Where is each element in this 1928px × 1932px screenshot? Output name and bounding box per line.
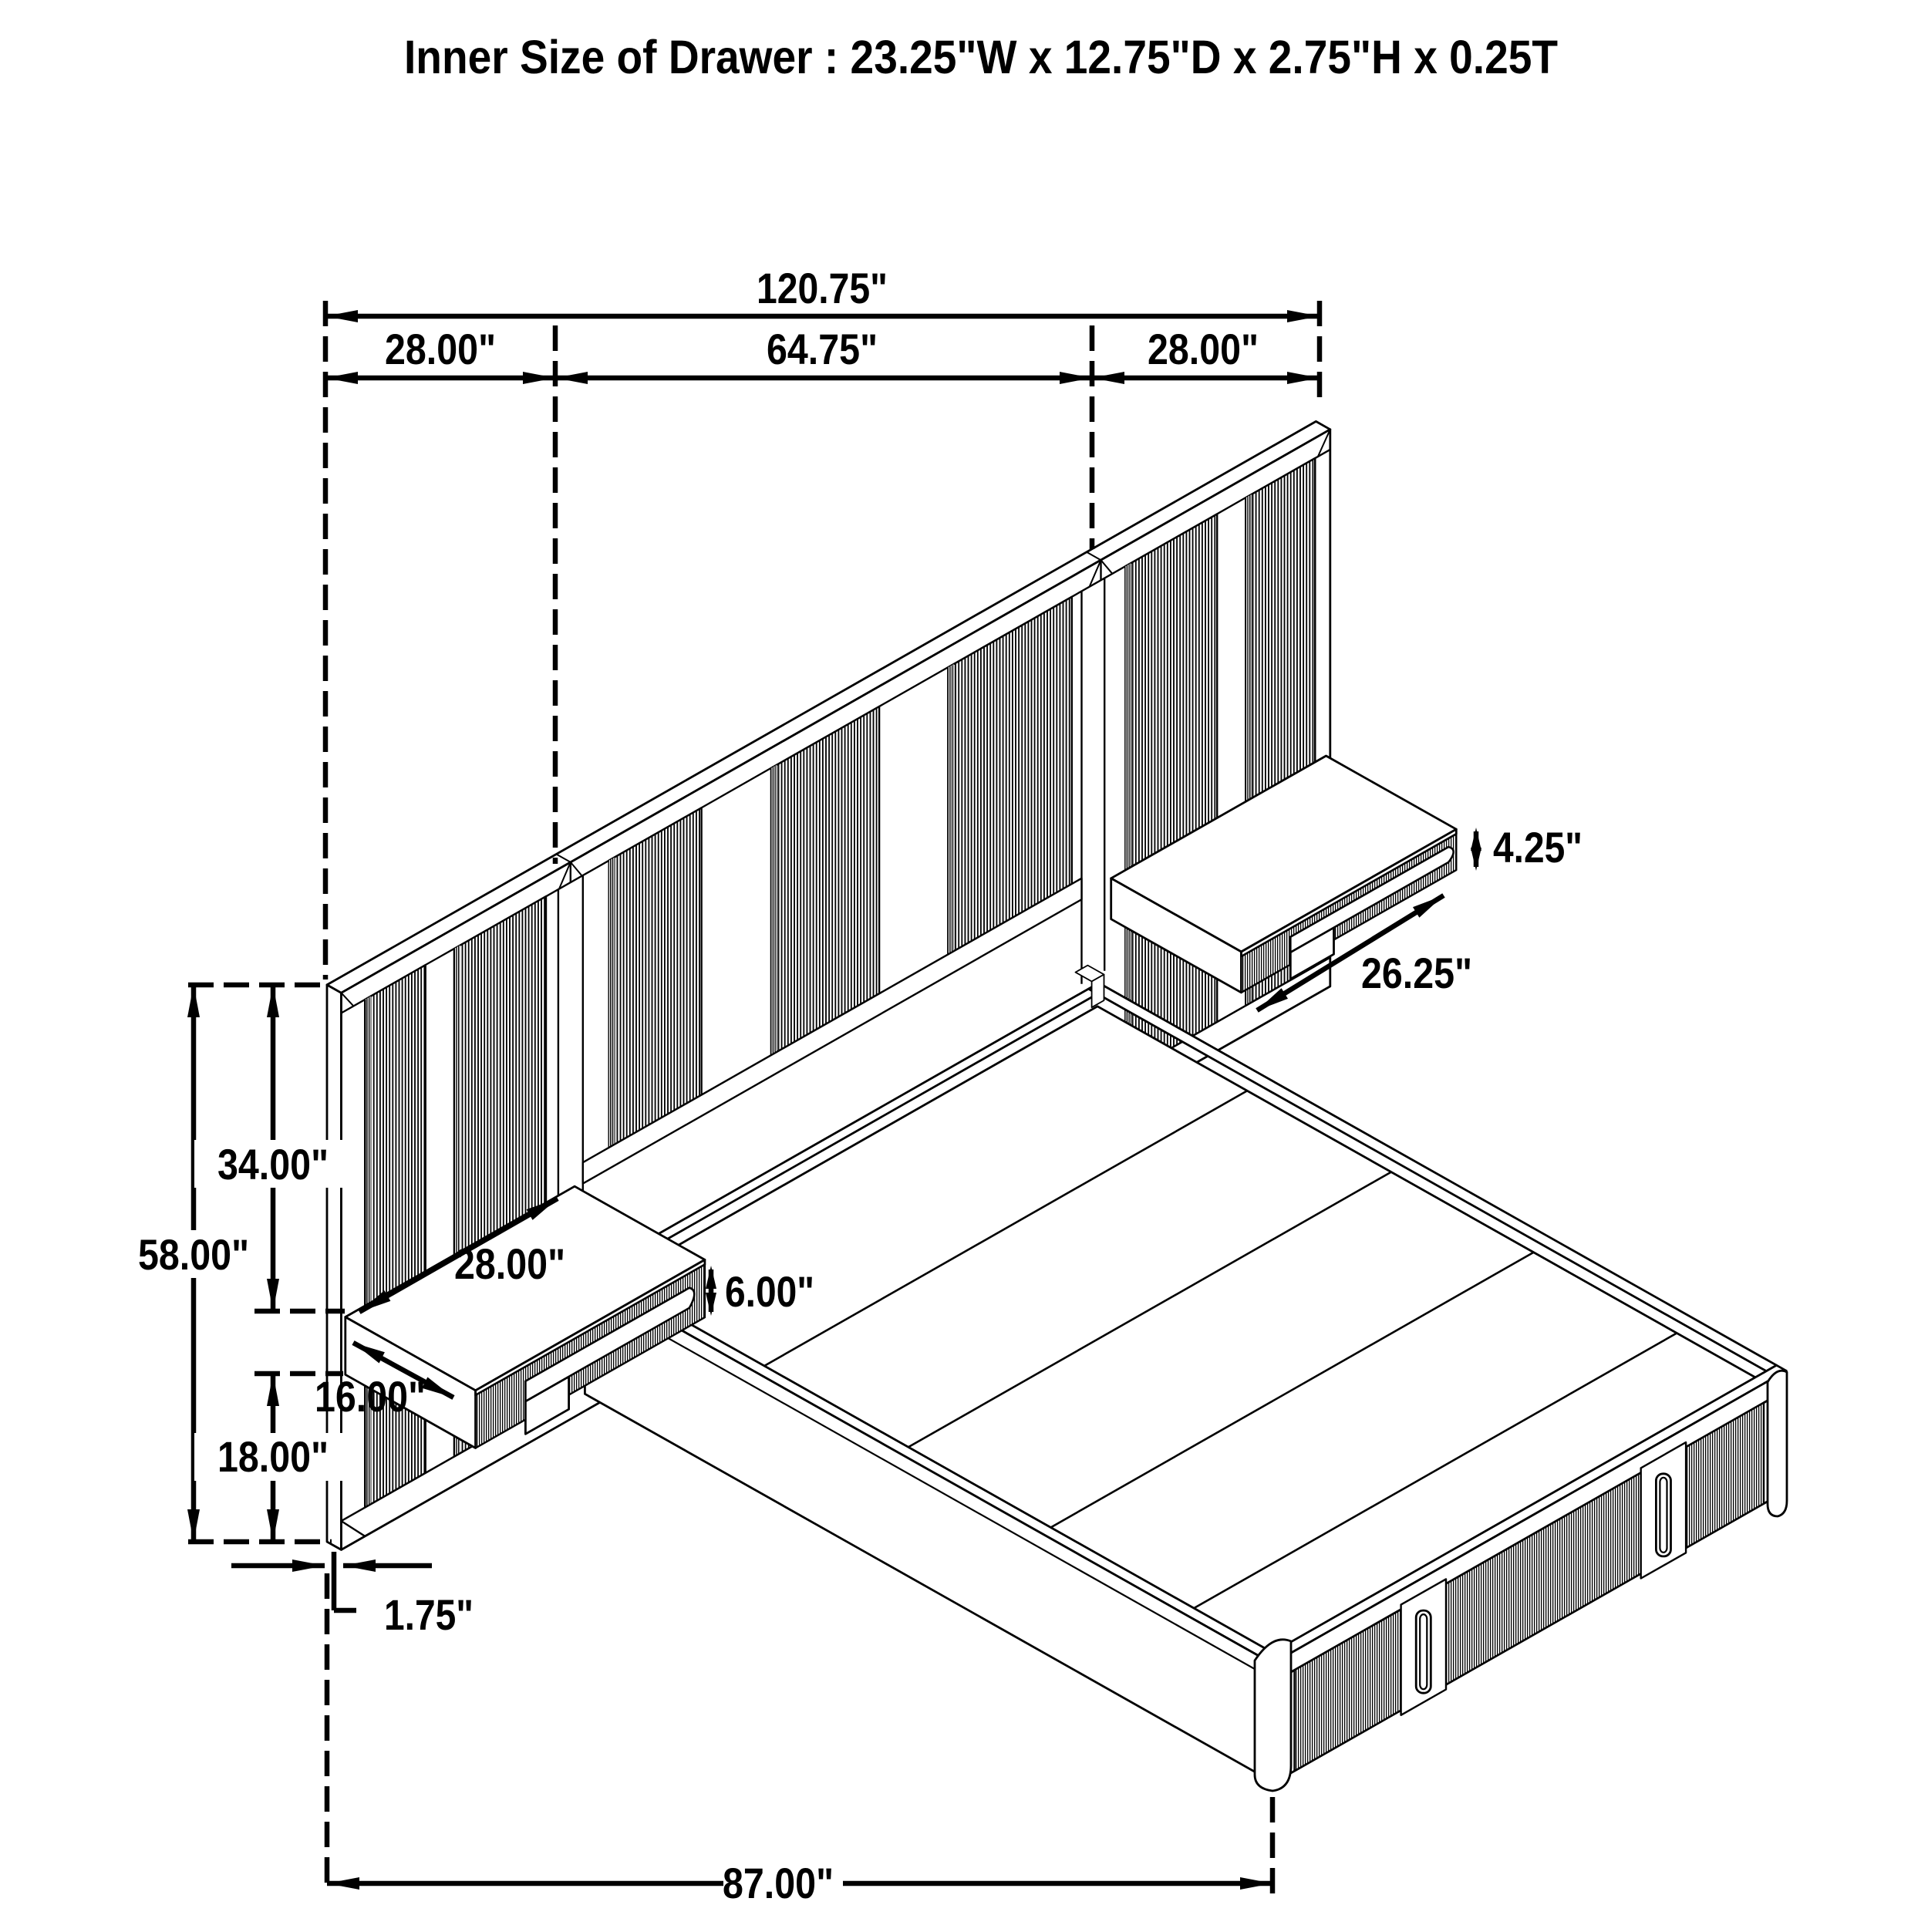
svg-text:58.00": 58.00"	[138, 1230, 249, 1279]
svg-text:34.00": 34.00"	[217, 1140, 329, 1189]
svg-text:Inner Size of Drawer : 23.25"W: Inner Size of Drawer : 23.25"W x 12.75"D…	[404, 31, 1558, 83]
svg-text:120.75": 120.75"	[757, 264, 888, 312]
svg-text:28.00": 28.00"	[454, 1239, 565, 1288]
svg-text:64.75": 64.75"	[767, 325, 878, 373]
svg-text:28.00": 28.00"	[1148, 325, 1259, 373]
svg-text:6.00": 6.00"	[725, 1267, 814, 1316]
svg-text:26.25": 26.25"	[1361, 949, 1472, 997]
svg-text:4.25": 4.25"	[1493, 823, 1583, 872]
svg-text:87.00": 87.00"	[723, 1859, 834, 1907]
svg-text:28.00": 28.00"	[385, 325, 496, 373]
svg-text:16.00": 16.00"	[315, 1372, 426, 1421]
svg-text:18.00": 18.00"	[217, 1432, 329, 1481]
svg-text:1.75": 1.75"	[384, 1590, 474, 1639]
